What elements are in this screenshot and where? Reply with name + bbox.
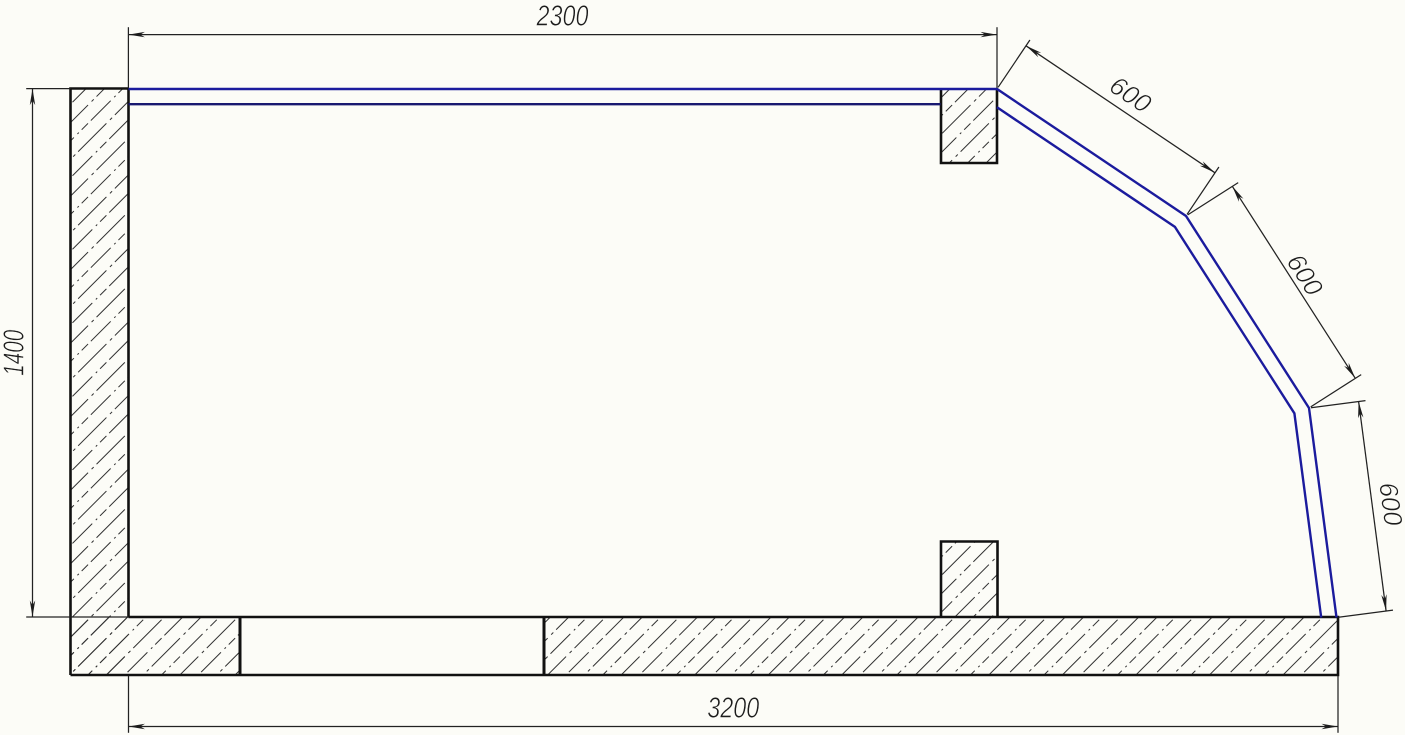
svg-text:2300: 2300 [536, 1, 589, 33]
svg-text:3200: 3200 [707, 693, 759, 725]
svg-text:1400: 1400 [0, 330, 31, 376]
